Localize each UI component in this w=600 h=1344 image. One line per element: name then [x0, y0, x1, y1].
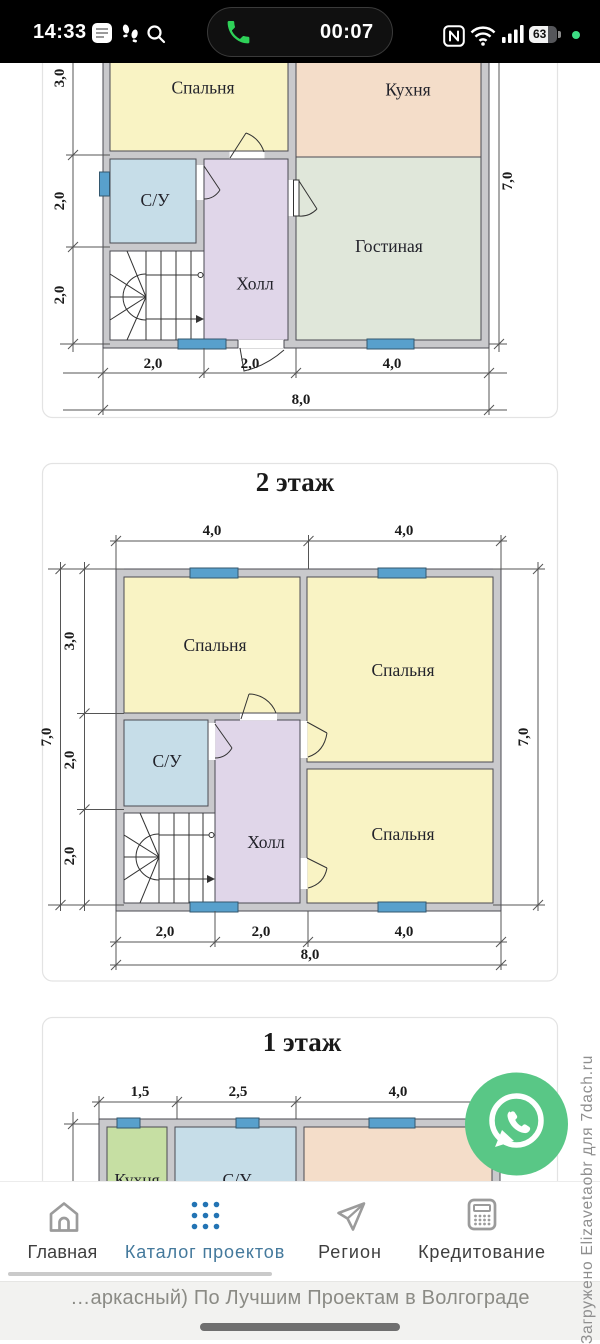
svg-text:2 этаж: 2 этаж	[256, 467, 335, 497]
svg-text:8,0: 8,0	[301, 947, 320, 963]
svg-text:С/У: С/У	[141, 190, 171, 210]
svg-text:3,0: 3,0	[52, 69, 68, 88]
svg-text:4,0: 4,0	[395, 523, 414, 539]
svg-text:Гостиная: Гостиная	[355, 236, 423, 256]
svg-text:2,0: 2,0	[252, 924, 271, 940]
svg-text:Спальня: Спальня	[171, 78, 234, 98]
svg-text:2,0: 2,0	[52, 286, 68, 305]
svg-text:4,0: 4,0	[383, 356, 402, 372]
svg-text:Спальня: Спальня	[371, 660, 434, 680]
svg-text:7,0: 7,0	[500, 172, 516, 191]
svg-text:Холл: Холл	[236, 274, 274, 294]
svg-text:2,0: 2,0	[241, 356, 260, 372]
svg-text:Спальня: Спальня	[371, 824, 434, 844]
svg-text:2,0: 2,0	[144, 356, 163, 372]
svg-text:2,0: 2,0	[156, 924, 175, 940]
svg-text:3,0: 3,0	[62, 632, 78, 651]
svg-text:С/У: С/У	[223, 1170, 253, 1181]
svg-text:Спальня: Спальня	[183, 635, 246, 655]
svg-text:4,0: 4,0	[203, 523, 222, 539]
svg-text:1,5: 1,5	[131, 1084, 150, 1100]
svg-text:2,0: 2,0	[62, 847, 78, 866]
svg-text:2,0: 2,0	[62, 751, 78, 770]
svg-text:7,0: 7,0	[516, 728, 532, 747]
svg-text:Кухня: Кухня	[114, 1170, 159, 1181]
svg-text:Кухня: Кухня	[385, 80, 430, 100]
svg-text:Холл: Холл	[247, 832, 285, 852]
svg-text:7,0: 7,0	[39, 728, 55, 747]
svg-text:4,0: 4,0	[389, 1084, 408, 1100]
svg-text:8,0: 8,0	[292, 392, 311, 408]
svg-text:2,0: 2,0	[52, 192, 68, 211]
svg-text:2,5: 2,5	[229, 1084, 248, 1100]
svg-text:1 этаж: 1 этаж	[263, 1027, 342, 1057]
svg-text:4,0: 4,0	[395, 924, 414, 940]
svg-text:С/У: С/У	[153, 751, 183, 771]
